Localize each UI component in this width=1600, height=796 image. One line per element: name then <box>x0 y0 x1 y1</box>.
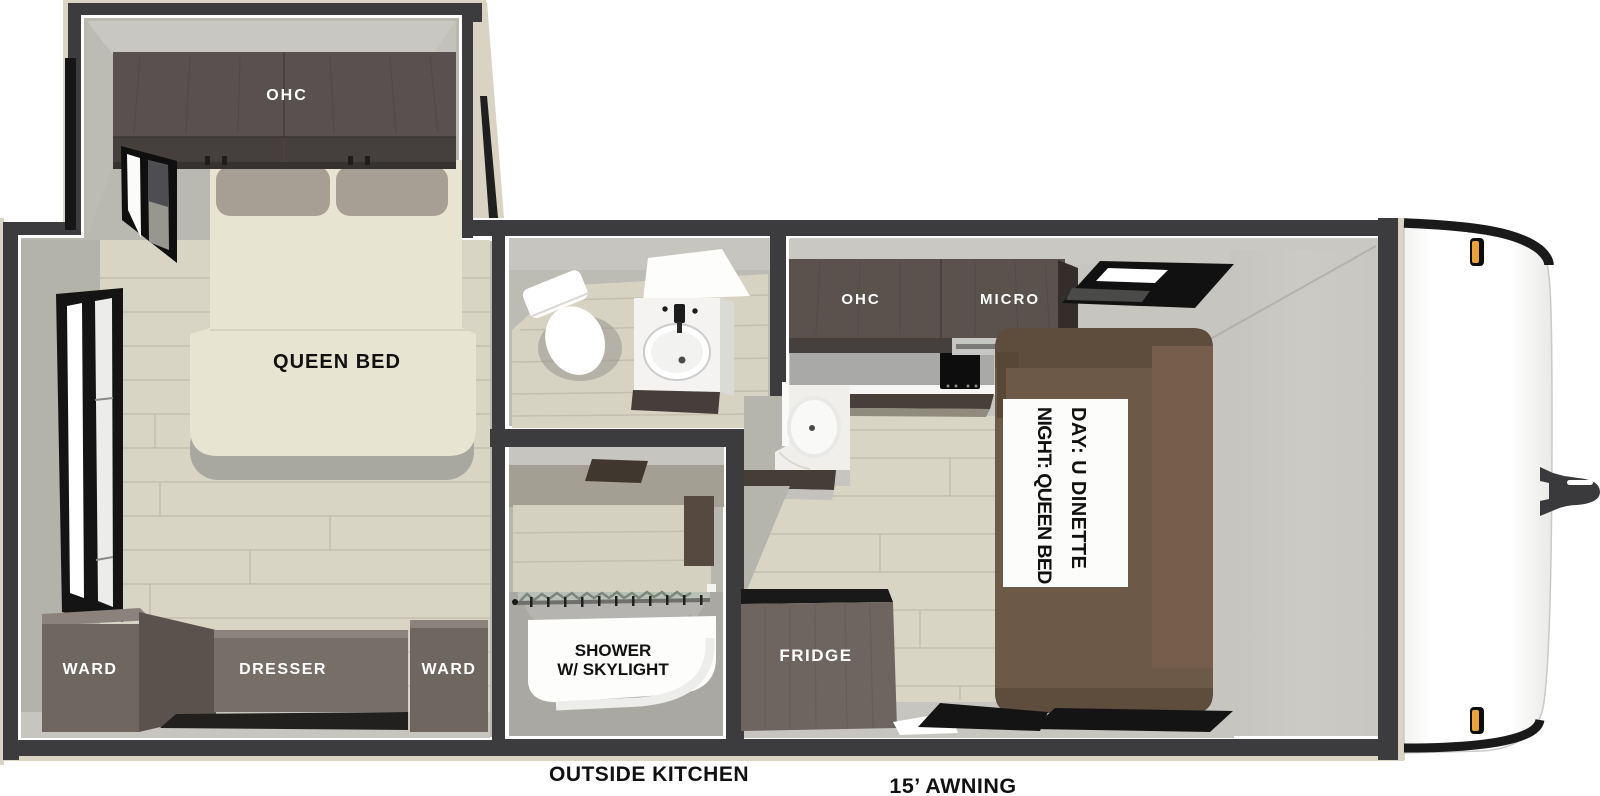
svg-text:NIGHT: QUEEN BED: NIGHT: QUEEN BED <box>1033 407 1055 584</box>
svg-text:WARD: WARD <box>63 661 118 678</box>
svg-text:WARD: WARD <box>422 661 477 678</box>
svg-text:W/ SKYLIGHT: W/ SKYLIGHT <box>557 660 669 679</box>
svg-text:OHC: OHC <box>841 291 880 308</box>
svg-text:15’ AWNING: 15’ AWNING <box>889 774 1016 796</box>
svg-text:MICRO: MICRO <box>980 291 1040 308</box>
svg-text:DRESSER: DRESSER <box>239 661 327 678</box>
svg-text:SHOWER: SHOWER <box>575 641 652 660</box>
svg-text:OHC: OHC <box>266 87 308 104</box>
svg-text:DAY: U DINETTE: DAY: U DINETTE <box>1067 407 1089 569</box>
svg-text:QUEEN BED: QUEEN BED <box>273 351 401 373</box>
svg-text:FRIDGE: FRIDGE <box>779 646 852 665</box>
svg-text:OUTSIDE KITCHEN: OUTSIDE KITCHEN <box>549 763 749 786</box>
